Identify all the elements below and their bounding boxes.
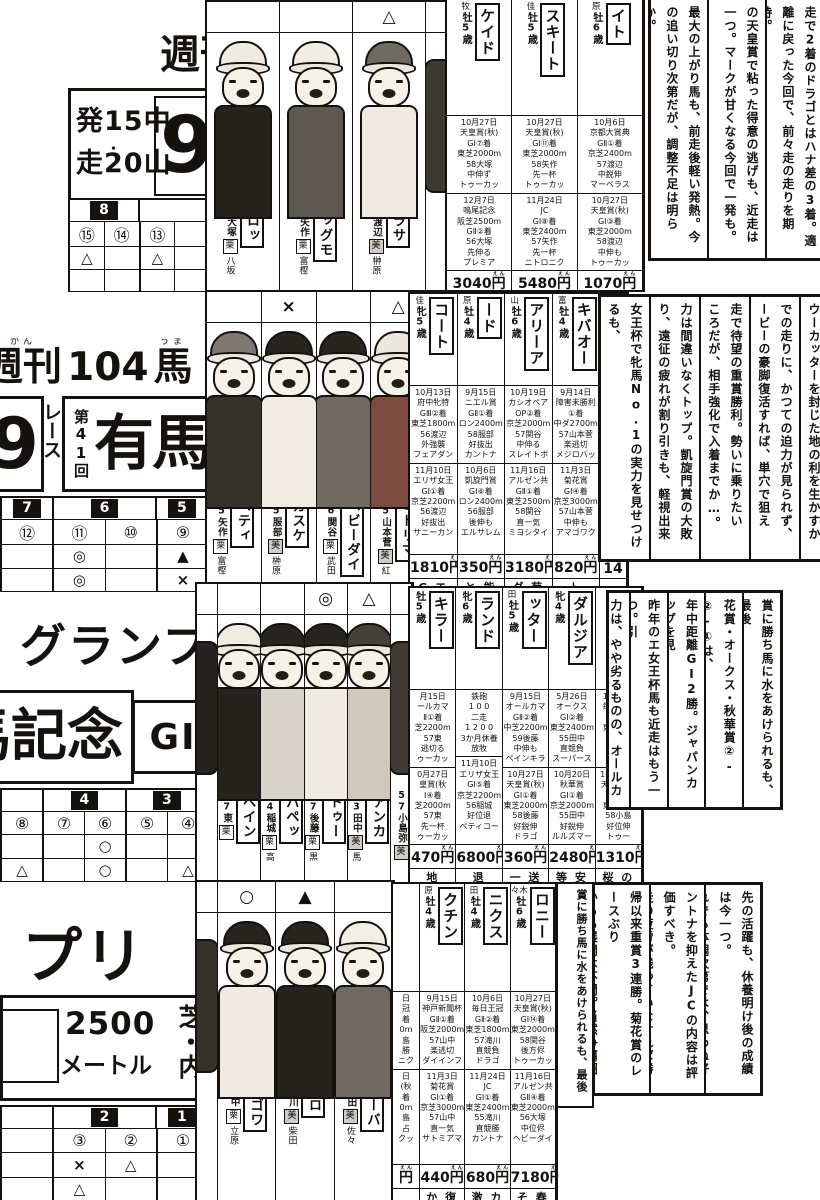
jockey-name-area [197, 787, 217, 880]
race-record: 11月16日 アルゼン共 GⅡ①着 東芝2500m 58関谷 直一気 ミヨシタイ [505, 463, 552, 541]
prediction-mark-cell [126, 859, 168, 881]
trainer-fragment: 田 [470, 887, 479, 896]
jockey-face-icon [261, 649, 303, 689]
race-record: 10月27日 天皇賞(秋) GⅠ⑪着 東芝2000m 58矢作 先一杯 トゥーカ… [512, 115, 576, 193]
jockey-mouth-icon [357, 969, 370, 978]
horse-data-column: 田牡5歳ッター9月15日 オールカマ GⅡ②着 中芝2200m 59後藤 中伸も… [503, 588, 549, 882]
race-record: 12月7日 鳴尾記念 阪芝2500m GⅡ②着 56大塚 先伸る プレミア [447, 193, 511, 271]
frame-number-badge: 7 [13, 499, 41, 518]
horse-name-area: 佳牝5歳コート [410, 294, 457, 385]
race-name: 有馬 [94, 414, 210, 474]
yen-character: 円えん [588, 850, 595, 866]
horse-side-info: 々木牡6歳 [511, 887, 528, 929]
cut-jockey-shape [197, 641, 218, 775]
running-mark-cell [261, 582, 303, 615]
frame-number-group: 8 [70, 200, 140, 221]
running-mark-cell [317, 290, 371, 323]
magazine-text1: 週刊 [0, 347, 62, 390]
jockey-column: 57矢作栗富樫ビッグモ [280, 0, 353, 290]
sex-age-label: 牡4歳 [555, 306, 570, 339]
horse-name-box: ード [477, 297, 502, 339]
trainer-name: 榊原 [269, 556, 282, 575]
grandprix-title: グランプ [20, 610, 206, 678]
comment-cell: 力は、やや劣るものの、オールカマーで [609, 593, 629, 807]
commentary-band2: ウーカッターを封じた地の利を生かすかでの走りに、かつての迫力が見られず、ービーの… [598, 294, 820, 562]
jockey-silks-icon [287, 105, 345, 219]
odds-number: 350 [459, 560, 488, 576]
prediction-mark-cell: ◎ [53, 545, 105, 568]
sex-age-label: 牡6歳 [512, 896, 527, 929]
race-record: 10月6日 毎日王冠 GⅡ②着 東芝1800m 57滝川 直競負 ドラゴ [465, 991, 509, 1069]
comment-cell: 走で待望の重賞勝利。勢いに乗りたいころだが、相手強化で入着までか…。 [699, 297, 749, 559]
jockey-mouth-icon [298, 969, 311, 978]
odds-value: 470円えん [410, 844, 455, 868]
jockey-silks-icon [317, 395, 372, 509]
stable-badge: 栗 [305, 835, 320, 850]
frame-number-group: 5 [157, 498, 209, 519]
horse-number-cell: ⑨ [157, 520, 209, 544]
horse-number-cell: ⑦ [43, 812, 85, 834]
horse-side-info: 原牡6歳 [589, 3, 604, 45]
comment-column: 力は、やや劣るものの、オールカマーで [609, 599, 627, 801]
odds-number: 820 [554, 560, 583, 576]
odds-number: 5480 [518, 276, 557, 290]
odds-number: 1070 [583, 276, 622, 290]
horse-side-info: 富牡4歳 [555, 297, 570, 339]
yen-character: 円えん [544, 560, 553, 576]
weight-and-jockey: 57小島弥 [394, 790, 408, 843]
jockey-face-icon [305, 649, 347, 689]
jockey-portrait [348, 615, 390, 787]
jockey-portrait [426, 33, 446, 191]
comment-cell: ウーカッターを封じた地の利を生かすか [799, 297, 820, 559]
race-record: 日 冠 着 0m 島 勝 ニク [393, 991, 419, 1069]
frame-number-badge: 5 [168, 499, 196, 518]
jockey-face-icon [226, 947, 268, 987]
comment-column: の追い切り次第だが、調整不足は明らか。 [651, 6, 683, 252]
odds-number: 440 [421, 1170, 450, 1186]
frame-number-badge: 6 [91, 499, 119, 518]
horse-name-box: ケイド [475, 3, 500, 61]
grid-header-row: 21 [2, 1107, 209, 1129]
odds-value: 6800円えん [456, 844, 501, 868]
horse-number-cell: ⑭ [105, 222, 140, 246]
comment-column: Iクラスの牡馬とは初対決。どこまで… [601, 303, 603, 553]
comment-column: ントナを抑えたJCの内容は評価すべき。 [658, 891, 702, 1087]
horse-data-column: 原牡4歳クチン9月15日 神戸新聞杯 GⅡ①着 阪芝2000m 57山中 楽逃切… [420, 884, 465, 1200]
comment-cell: 先の活躍も、休養明け後の成績は今一つ。れでも体調次第では、思わぬ好走も…。 [704, 885, 760, 1093]
trainer-fragment: 佳 [527, 3, 536, 12]
sex-age-label: 牝5歳 [412, 306, 427, 339]
kinen-box: 馬記念 [0, 690, 134, 784]
race-record: 11月16日 アルゼン共 GⅡ④着 東芝2000m 56大塚 中位侭 ヘビーダイ [511, 1069, 555, 1147]
race-record: 10月27日 天皇賞(秋) GⅠ⑭着 東芝2000m 58関谷 後方侭 トゥーカ… [511, 991, 555, 1069]
stable-badge: 美 [348, 835, 363, 850]
horse-name-area: 牡5歳キラー [410, 588, 455, 689]
horse-name-area: 田牡5歳ッター [503, 588, 548, 689]
jockey-silks-icon [360, 105, 418, 219]
jockey-portrait [280, 33, 352, 191]
trainer-name: 黒 [306, 852, 319, 862]
prediction-mark-row: △○△ [2, 859, 209, 882]
newspaper-page: 週刊 発15中走20山 ・ 9 8⑮⑭⑬△△ 57大塚栗八坂ブロッ57矢作栗富樫… [0, 0, 820, 1200]
jockey-column: ×55服部美榊原カスケ [262, 290, 317, 590]
trainer-fragment: 富 [558, 297, 567, 306]
running-mark-cell: ◎ [305, 582, 347, 615]
prediction-mark-cell [70, 270, 105, 292]
horse-name-box: ランド [475, 591, 500, 649]
race-record: 9月15日 オールカマ GⅡ②着 中芝2200m 59後藤 中伸も ペインキラ [503, 689, 548, 767]
jockey-column: 56関谷栗武田ヘビーダイ [317, 290, 372, 590]
prediction-mark-row: △ [2, 1178, 209, 1200]
frame-number-group [2, 790, 44, 811]
sex-age-label: 牡5歳 [458, 12, 473, 45]
running-mark-cell [218, 582, 260, 615]
commentary-band4: 先の活躍も、休養明け後の成績は今一つ。れでも体調次第では、思わぬ好走も…。ントナ… [592, 882, 763, 1096]
running-mark-cell: △ [348, 582, 390, 615]
frame-number-group [2, 1107, 54, 1128]
jockey-portrait [261, 615, 303, 787]
race-record: 10月6日 京都大賞典 GⅡ①着 京芝2400m 57渡辺 中鋭伸 マーベラス [578, 115, 642, 193]
horse-data-column: 富牡4歳キバオー9月14日 障害未勝利 ①着 中ダ2700m 57山本菅 楽逃切… [553, 294, 601, 592]
prediction-mark-cell [105, 247, 140, 269]
comment-cell: ントナを抑えたJCの内容は評価すべき。走の疲労が残っていなければ勝機は十分。 [649, 885, 705, 1093]
yen-character: 円えん [492, 276, 506, 290]
horse-data-column: 々木牡6歳ロニー10月27日 天皇賞(秋) GⅠ⑭着 東芝2000m 58関谷 … [511, 884, 556, 1200]
horse-name-area: 富牡4歳キバオー [553, 294, 600, 385]
prediction-mark-row: ○ [2, 835, 209, 858]
prediction-mark-cell: ○ [85, 859, 126, 881]
horse-name-area: 原牡4歳クチン [420, 884, 464, 991]
race-record: 11月24日 JC GⅠ⑧着 東芝2400m 57矢作 先一杯 ニトロニク [512, 193, 576, 271]
next-text-fragment: 一 送 [503, 868, 548, 882]
stable-badge: 美 [369, 239, 384, 254]
next-text-fragment: か 復 [420, 1188, 464, 1200]
comment-column: の天皇賞で粘った得意の逃げも、近走は [741, 6, 763, 252]
grandprix-title-tail: プリ [22, 908, 207, 988]
horse-name-area: 々木牡6歳ロニー [511, 884, 555, 991]
jockey-mouth-icon [392, 379, 405, 388]
prediction-mark-cell: ○ [85, 835, 126, 857]
jockey-mouth-icon [319, 671, 332, 680]
prediction-mark-cell: △ [140, 247, 176, 269]
jockey-portrait [207, 33, 279, 191]
prediction-mark-cell [43, 859, 85, 881]
distance-value: 2500 [65, 1006, 155, 1042]
comment-cell: 昨年のエ女王杯馬も近走はもう一つ。引レースの今回で、奇跡を起こせるか…。 [629, 593, 667, 807]
horse-name-box: スキート [540, 3, 565, 77]
comment-cell: 最大の上がり馬も、前走後軽い発熱。今の追い切り次第だが、調整不足は明らか。 [651, 0, 707, 258]
horse-name-box: ダルジア [568, 591, 593, 665]
weekly-logo: 週刊 [160, 34, 206, 90]
odds-value: 3040円えん [447, 270, 511, 290]
running-mark-cell [207, 0, 279, 33]
trainer-fragment: 原 [424, 887, 433, 896]
horse-data-column: 佳牝5歳コート10月13日 府中牝特 GⅢ②着 東芝1800m 56渡辺 外強襲… [410, 294, 458, 592]
odds-number: 470 [411, 850, 440, 866]
prediction-mark-cell [105, 270, 140, 292]
jockey-strip-band1: 57大塚栗八坂ブロッ57矢作栗富樫ビッグモ△56渡辺美榊原パラサ [205, 0, 449, 290]
next-text-fragment: 等 安 [549, 868, 594, 882]
horse-number-row: ⑫⑪⑩⑨ [2, 520, 209, 545]
horse-name-area: 原牡6歳イト [578, 0, 642, 115]
race-record: 10月27日 天皇賞(秋) GⅠ③着 東芝2000m 58渡辺 中伸も トゥーカ… [578, 193, 642, 271]
comment-cell: 花賞・オークス・秋華賞②-②-①は、定感があるも、相手が牡馬一線級では…。 [704, 593, 742, 807]
horse-side-info: 牡5歳 [412, 591, 427, 624]
race-record: 10月27日 天皇賞(秋) GⅠ①着 東芝2000m 58後藤 好鋭伸 ドラゴ [503, 767, 548, 845]
jockey-mouth-icon [383, 89, 396, 98]
odds-number: 3040 [453, 276, 492, 290]
horse-name-box: コート [429, 297, 454, 355]
horse-name-area: 田牡4歳ニクス [465, 884, 509, 991]
horse-name-area: 牧牡5歳ケイド [447, 0, 511, 115]
jockey-portrait [305, 615, 347, 787]
cut-comment-fragment: 賞に勝ち馬に水をあけられるも、最後 [556, 882, 594, 1108]
jockey-mouth-icon [240, 969, 253, 978]
comment-cell: 年中距離GⅠ2勝。ジャパンカップを見り、体調は前走以上。優勝候補の一頭。 [667, 593, 705, 807]
jockey-face-icon [213, 357, 255, 397]
prediction-mark-cell [2, 835, 43, 857]
horse-name-area: 原牡4歳ード [458, 294, 505, 385]
comment-cell: 帰以来重賞3連勝。菊花賞のレースぶりからも展開は不問。当然争覇圏内だろう。 [595, 885, 649, 1093]
odds-number: 1310 [596, 850, 635, 866]
odds-value: 350円えん [458, 554, 505, 578]
grade-text: GⅠ [150, 717, 197, 758]
sex-age-label: 牡5歳 [412, 591, 427, 624]
jockey-portrait [353, 33, 425, 191]
jockey-portrait [207, 323, 261, 491]
sex-age-label: 牡4歳 [466, 896, 481, 929]
frame-number-group: 4 [44, 790, 126, 811]
comment-column: ころだが、相手強化で入着までか…。 [703, 303, 725, 553]
horse-number-cell [2, 1129, 53, 1152]
horse-side-info: 山牡6歳 [507, 297, 522, 339]
race-record: 鉄砲 1 0 0 二走 1 2 0 0 3か月休養 放牧 [456, 689, 501, 756]
jockey-mouth-icon [237, 89, 250, 98]
marks-grid-band4: 21③②①×△△ [0, 1105, 209, 1200]
jockey-column [426, 0, 447, 290]
horse-side-info: 田牡5歳 [505, 591, 520, 633]
horse-data-column: 原牡4歳ード9月15日 ニエル賞 GⅡ①着 ロン2400m 58服部 好抜出 カ… [458, 294, 506, 592]
jockey-silks-icon [207, 395, 262, 509]
race-record: 11月3日 菊花賞 GⅠ①着 京芝3000m 57山中 直一気 サトミアマ [420, 1069, 464, 1147]
prediction-mark-row: ×△ [2, 1153, 209, 1177]
marks-grid-band1: 8⑮⑭⑬△△ [68, 198, 210, 292]
race-record: 10月20日 秋華賞 GⅠ①着 京芝2000m 55田中 好鋭伸 ルルズマー [549, 767, 594, 845]
jockey-silks-icon [218, 687, 261, 801]
trainer-fragment: 佳 [415, 297, 424, 306]
odds-value: 360円えん [503, 844, 548, 868]
horse-number-cell: ③ [53, 1129, 105, 1152]
comment-column: 離に戻った今回で、前々走の走りを期待。 [765, 6, 799, 252]
horse-data-column: 佳牡5歳スキート10月27日 天皇賞(秋) GⅠ⑪着 東芝2000m 58矢作 … [512, 0, 577, 290]
sex-age-label: 牝4歳 [551, 591, 566, 624]
prediction-mark-cell [106, 569, 157, 592]
comment-column: 花賞・オークス・秋華賞②-②-①は、 [704, 599, 740, 801]
horse-side-info: 牧牡5歳 [458, 3, 473, 45]
jockey-column: ◎57後藤栗黒トゥー [305, 582, 348, 880]
yen-character: 円えん [449, 560, 458, 576]
odds-value: 820円えん [553, 554, 600, 578]
past-performance-band2: 佳牝5歳コート10月13日 府中牝特 GⅢ②着 東芝1800m 56渡辺 外強襲… [408, 292, 629, 594]
prediction-mark-cell [140, 270, 176, 292]
odds-value: 2480円えん [549, 844, 594, 868]
comment-column: 帰以来重賞3連勝。菊花賞のレースぶり [602, 891, 646, 1087]
running-mark-cell: ▲ [276, 880, 333, 913]
comment-column: 一つ。マークが甘くなる今回で一発も。 [719, 6, 741, 252]
stable-badge: 栗 [223, 239, 238, 254]
horse-name-box: ッター [522, 591, 547, 649]
jockey-face-icon [218, 649, 260, 689]
stable-badge: 栗 [262, 835, 277, 850]
prediction-mark-row: ◎▲ [2, 545, 209, 569]
trainer-name: 紅 [379, 566, 392, 576]
race-record: 0月27日 皇賞(秋 Ⅰ④着 芝2000m 57東 先一杯 ゥーカッ [410, 767, 455, 845]
horse-side-info: 佳牝5歳 [412, 297, 427, 339]
odds-number: 680 [466, 1170, 495, 1186]
trainer-name: 武田 [324, 556, 337, 575]
yen-character: 円えん [550, 1170, 556, 1186]
race-record: 10月6日 凱旋門賞 GⅠ⑥着 ロン2400m 56服部 後伸も エルサレム [458, 463, 505, 541]
trainer-name: 高 [263, 852, 276, 862]
stable-badge: 栗 [296, 239, 311, 254]
horse-name-box: ニクス [483, 887, 508, 945]
jockey-strip-band3: 57東栗ペイン54稲城栗高パペッ◎57後藤栗黒トゥー△53田中美馬アンカ57小島… [195, 582, 414, 880]
trainer-fragment: 牧 [461, 3, 470, 12]
odds-value: 1310円えん [596, 844, 641, 868]
jockey-face-icon [295, 67, 337, 107]
race-edition: 第41回 [71, 409, 92, 479]
prediction-mark-cell [126, 835, 168, 857]
jockey-portrait [218, 913, 275, 1061]
race-number: 9 [160, 107, 211, 185]
horse-name-box: キバオー [572, 297, 597, 371]
horse-number-row: ③②① [2, 1129, 209, 1153]
trainer-fragment: 々木 [511, 887, 528, 896]
magazine-seg3: うま馬 [154, 338, 193, 390]
sex-age-label: 牡4歳 [460, 306, 475, 339]
jockey-portrait [218, 615, 260, 787]
horse-side-info: 原牡4歳 [460, 297, 475, 339]
jockey-portrait [197, 913, 217, 1061]
stable-badge: 栗 [219, 825, 234, 840]
comment-column: 力は間違いなくトップ。凱旋門賞の大敗 [675, 303, 697, 553]
horse-data-column: 山牡6歳アリーア10月19日 カシオペア OP②着 京芝2000m 57関谷 中… [505, 294, 553, 592]
comment-column: での走りに、かつての迫力が見られず、 [775, 303, 797, 553]
horse-number-cell: ⑥ [85, 812, 126, 834]
odds-number: 7180 [511, 1170, 550, 1186]
horse-name-box: イト [606, 3, 631, 45]
jockey-column: △56渡辺美榊原パラサ [353, 0, 426, 290]
comment-column: り、遠征の疲れが割り引きも、軽視出来ぬ。 [649, 303, 675, 553]
next-text-fragment: 激 カ [465, 1188, 509, 1200]
yen-character: 円えん [495, 1170, 509, 1186]
jockey-silks-icon [214, 105, 272, 219]
horse-side-info: 佳牡5歳 [523, 3, 538, 45]
trainer-name: 富樫 [297, 256, 310, 275]
horse-number-cell: ⑩ [106, 520, 157, 544]
grid-header-row: 43 [2, 790, 209, 812]
horse-name-area: 山牡6歳アリーア [505, 294, 552, 385]
comment-column: 走の疲労が残っていなければ勝機は十分。 [649, 891, 658, 1087]
magazine-text2: 104 [67, 347, 148, 390]
comment-column: 先の活躍も、休養明け後の成績は今一つ。 [714, 891, 758, 1087]
jockey-silks-icon [335, 985, 393, 1099]
comment-cell: 走で2着のドラゴとはハナ差の3着。適離に戻った今回で、前々走の走りを期待。 [765, 0, 820, 258]
race-record: 11月24日 JC GⅠ①着 東芝2400m 55滝川 直競勝 カントナ [465, 1069, 509, 1147]
jockey-column: ▲55滝川美柴田ニトロ [276, 880, 334, 1200]
prediction-mark-row [70, 270, 210, 293]
yen-character: 円えん [557, 276, 571, 290]
race-record: 10月27日 天皇賞(秋) GⅠ⑦着 東芝2000m 58大塚 中伸ず トゥーカ… [447, 115, 511, 193]
frame-number-group: 6 [54, 498, 157, 519]
trainer-name: 富樫 [214, 556, 227, 575]
trainer-fragment: 原 [592, 3, 601, 12]
weekly-logo-text: 週刊 [160, 34, 206, 78]
running-mark-cell [197, 880, 217, 913]
jockey-silks-icon [218, 985, 276, 1099]
horse-data-column: 牡5歳キラー月15日 ールカマ Ⅱ①着 芝2200m 57東 逃切る ゥーカッ0… [410, 588, 456, 882]
trainer-name: 榊原 [370, 256, 383, 275]
magazine-title: かん週刊 104 うま馬 [0, 338, 216, 398]
prediction-mark-cell: △ [70, 247, 105, 269]
horse-number-cell: ⑮ [70, 222, 105, 246]
race-record: 11月3日 菊花賞 GⅠ④着 京芝3000m 57山本菅 中伸も アマゴワク [553, 463, 600, 541]
jockey-face-icon [348, 649, 390, 689]
trainer-fragment: 田 [508, 591, 517, 600]
frame-number-badge: 4 [71, 791, 99, 810]
horse-name-area [393, 884, 419, 991]
jockey-side-info: 57小島弥美 [394, 790, 409, 860]
trainer-name: 柴田 [285, 1126, 298, 1145]
comment-column: 女王杯で牝馬No.1の実力を見せつけるも、 [603, 303, 647, 553]
race-title-box: 第41回 有馬 [62, 396, 211, 492]
running-mark-cell [426, 0, 446, 33]
stable-badge: 栗 [323, 539, 338, 554]
odds-value: 3180円えん [505, 554, 552, 578]
race-record: 11月10日 エリザ女王 GⅠ①着 京芝2200m 56渡辺 好抜出 サニーカン [410, 463, 457, 541]
running-mark-cell: × [262, 290, 316, 323]
jockey-portrait [335, 913, 392, 1061]
frame-number-badge: 2 [91, 1108, 119, 1127]
comment-cell: の天皇賞で粘った得意の逃げも、近走は一つ。マークが甘くなる今回で一発も。 [707, 0, 765, 258]
race-info-box: 発15中走20山 ・ 9 [68, 88, 211, 204]
prediction-mark-cell: △ [106, 1153, 157, 1176]
odds-number: 3180 [505, 560, 544, 576]
horse-side-info: 田牡4歳 [466, 887, 481, 929]
race-record: 9月15日 神戸新聞杯 GⅡ①着 阪芝2000m 57山中 楽逃切 ダイインフ [420, 991, 464, 1069]
yen-character: 円えん [488, 560, 502, 576]
odds-value: 円えん [393, 1164, 419, 1188]
horse-side-info: 牝6歳 [458, 591, 473, 624]
commentary-band1: 走で2着のドラゴとはハナ差の3着。適離に戻った今回で、前々走の走りを期待。の天皇… [648, 0, 820, 261]
jockey-face-icon [284, 947, 326, 987]
info-dot: ・ [107, 138, 120, 157]
race-number-box: 9 [154, 96, 211, 196]
jockey-silks-icon [261, 687, 304, 801]
prediction-mark-cell [106, 1178, 157, 1200]
jockey-column: 57東栗ペイン [218, 582, 261, 880]
yen-character: 円えん [635, 850, 642, 866]
race-number-band2: 9 [0, 403, 41, 485]
race-record: 10月13日 府中牝特 GⅢ②着 東芝1800m 56渡辺 外強襲 フェアダン [410, 385, 457, 463]
sex-age-label: 牡5歳 [505, 600, 520, 633]
odds-number: 360 [504, 850, 533, 866]
jockey-silks-icon [262, 395, 317, 509]
stable-badge: 美 [284, 1109, 299, 1124]
jockey-name-area [426, 191, 446, 290]
horse-name-box: ロニー [530, 887, 555, 945]
